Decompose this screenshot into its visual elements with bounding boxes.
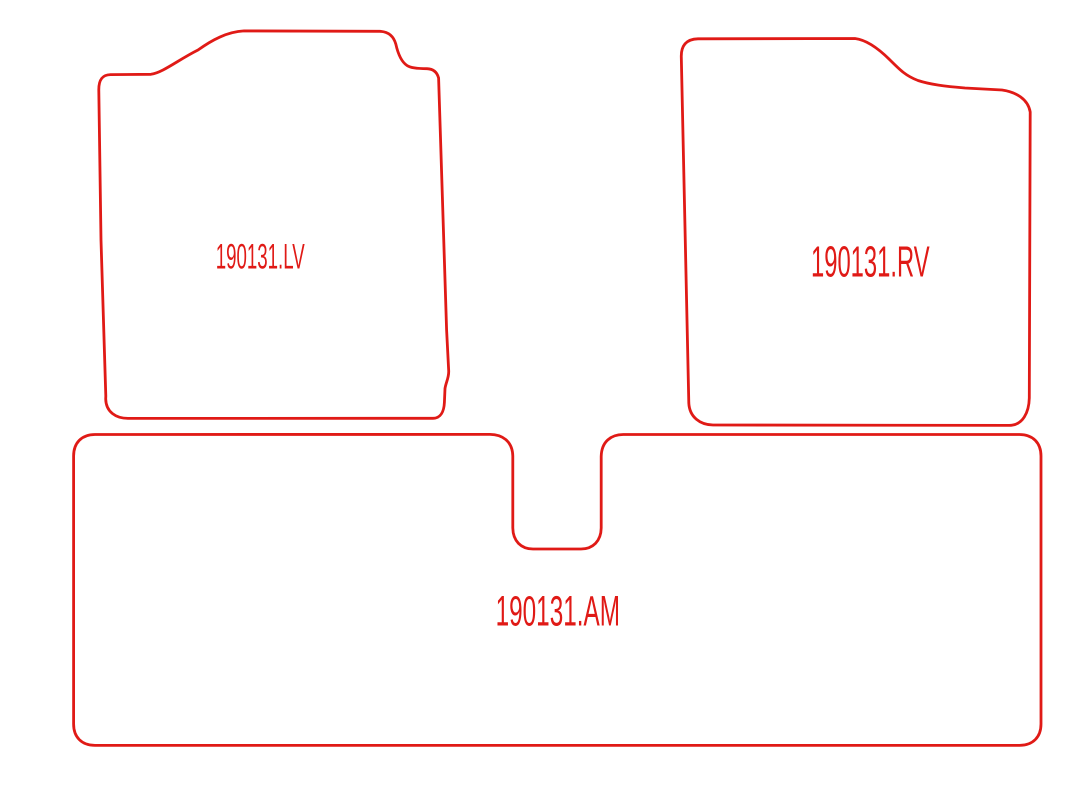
svg-text:190131.LV: 190131.LV (216, 238, 305, 277)
svg-text:190131.RV: 190131.RV (811, 237, 930, 286)
svg-text:190131.AM: 190131.AM (496, 588, 620, 636)
